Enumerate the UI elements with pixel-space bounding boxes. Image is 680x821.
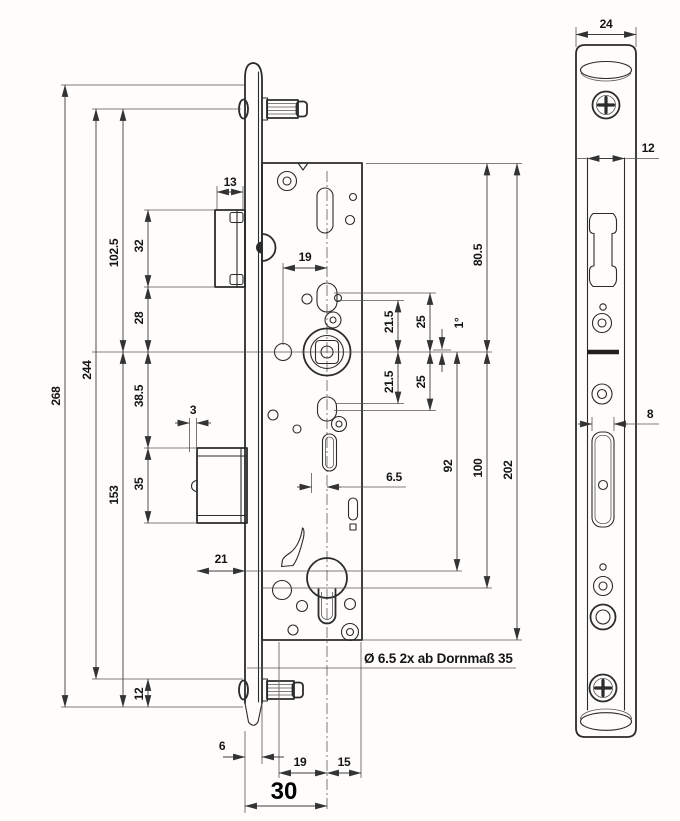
dim-label: 28 [132, 311, 146, 324]
note-text: Ø 6.5 2x ab Dornmaß 35 [364, 651, 513, 666]
dim-label: 6.5 [386, 470, 402, 484]
dim-label: 3 [190, 403, 197, 417]
drawing-canvas: 268 244 102.5 153 32 28 38.5 35 [0, 0, 680, 821]
dim-label: 21.5 [382, 370, 396, 393]
dim-label: 13 [224, 175, 237, 189]
dim-label: 102.5 [107, 238, 121, 267]
dim-label: 32 [132, 239, 146, 252]
dim-label: 25 [414, 375, 428, 388]
lock-technical-drawing: 268 244 102.5 153 32 28 38.5 35 [0, 0, 680, 821]
dim-label: 202 [501, 460, 515, 480]
dim-label: 1° [452, 317, 466, 328]
dim-label: 8 [647, 407, 654, 421]
dim-label: 12 [132, 687, 146, 700]
dim-label: 80.5 [471, 243, 485, 266]
dim-label: 19 [294, 755, 307, 769]
dim-label: 153 [107, 485, 121, 505]
dim-label: 24 [600, 17, 613, 31]
dim-label: 35 [132, 477, 146, 490]
dim-label: 12 [642, 141, 655, 155]
top-screw [593, 92, 620, 119]
dim-label: 15 [338, 755, 351, 769]
dim-label: 25 [414, 315, 428, 328]
dim-label: 19 [299, 250, 312, 264]
dim-label: 92 [441, 459, 455, 472]
dim-label: 38.5 [132, 384, 146, 407]
dim-label: 244 [80, 360, 94, 380]
dim-label: 21.5 [382, 310, 396, 333]
dim-label: 30 [271, 778, 298, 805]
dim-label: 21 [215, 552, 228, 566]
dim-label: 268 [49, 386, 63, 406]
bottom-screw [590, 675, 617, 702]
dim-label: 100 [471, 458, 485, 478]
dim-label: 6 [219, 739, 226, 753]
